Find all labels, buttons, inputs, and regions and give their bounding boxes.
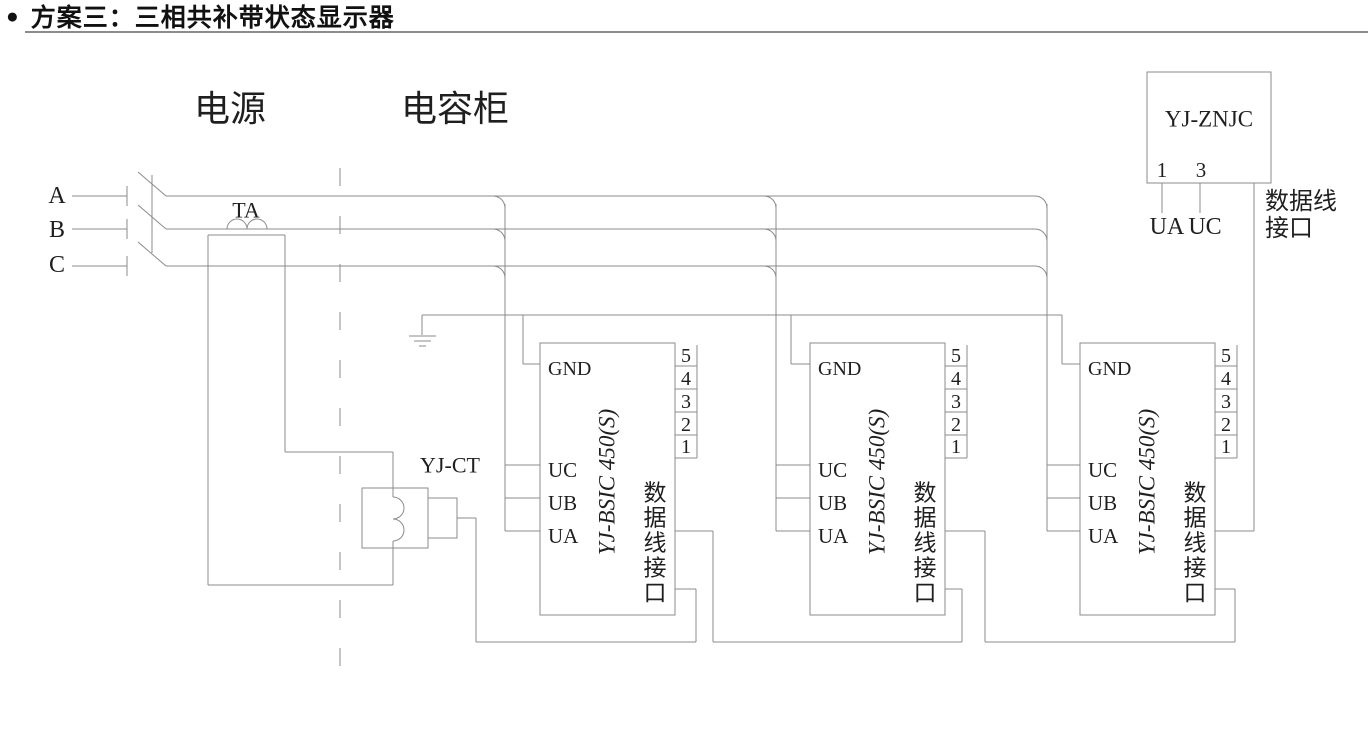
pin-number: 3 xyxy=(681,391,691,413)
ct-sensor: YJ-CT xyxy=(362,453,481,643)
tap-elbow xyxy=(764,229,776,241)
interface-label-char: 据 xyxy=(644,506,667,531)
display-unit: YJ-ZNJC 1 3 UA UC 数据线 接口 xyxy=(1147,72,1337,242)
pin-number: 2 xyxy=(681,414,691,436)
phase-a: A xyxy=(48,172,1035,209)
display-uc-label: UC xyxy=(1188,214,1221,240)
display-unit-name: YJ-ZNJC xyxy=(1165,107,1253,132)
pin-number: 4 xyxy=(681,368,691,390)
interface-label-char: 据 xyxy=(914,506,937,531)
phase-b: B xyxy=(49,205,1035,243)
interface-label-char: 接 xyxy=(1184,556,1207,581)
display-ua-label: UA xyxy=(1150,214,1185,240)
tap-elbow xyxy=(493,229,505,241)
pin-number: 2 xyxy=(1221,414,1231,436)
pin-number: 4 xyxy=(1221,368,1231,390)
tap-elbow xyxy=(764,196,776,208)
wiring-diagram: 电源 电容柜 A B C xyxy=(0,0,1368,753)
gnd-pin-label: GND xyxy=(1088,358,1131,380)
ua-pin-label: UA xyxy=(818,524,849,548)
scheme-diagram-page: ● 方案三：三相共补带状态显示器 电源 电容柜 A B C xyxy=(0,0,1368,753)
tap-elbow xyxy=(1035,229,1047,241)
pin-number: 5 xyxy=(1221,345,1231,367)
tap-elbow xyxy=(1035,196,1047,208)
pin-number: 1 xyxy=(681,436,691,458)
ub-pin-label: UB xyxy=(548,491,577,515)
pin-number: 5 xyxy=(681,345,691,367)
interface-label-char: 数 xyxy=(644,481,667,506)
pin-number: 2 xyxy=(951,414,961,436)
module-name: YJ-BSIC 450(S) xyxy=(1135,409,1160,555)
module-name: YJ-BSIC 450(S) xyxy=(595,409,620,555)
interface-label-char: 数 xyxy=(1184,481,1207,506)
interface-label-char: 口 xyxy=(644,581,667,606)
interface-label-char: 据 xyxy=(1184,506,1207,531)
phase-c-label: C xyxy=(49,252,65,278)
ua-pin-label: UA xyxy=(548,524,579,548)
interface-label-char: 线 xyxy=(1184,531,1207,556)
uc-pin-label: UC xyxy=(1088,458,1117,482)
pin-number: 3 xyxy=(1221,391,1231,413)
ct-loop-arcs xyxy=(393,497,404,541)
page-header: ● 方案三：三相共补带状态显示器 xyxy=(6,0,395,32)
bullet-icon: ● xyxy=(6,6,19,27)
ct-output-box xyxy=(428,498,457,538)
tap-elbow xyxy=(1035,266,1047,278)
phase-a-label: A xyxy=(48,183,66,209)
interface-label-char: 口 xyxy=(1184,581,1207,606)
module-2: 5 4 3 2 1 GND UC UB UA YJ-BSIC 450(S) 数 … xyxy=(764,196,985,642)
uc-pin-label: UC xyxy=(818,458,847,482)
module-name: YJ-BSIC 450(S) xyxy=(865,409,890,555)
phase-b-label: B xyxy=(49,217,65,243)
tap-elbow xyxy=(493,196,505,208)
module-3: 5 4 3 2 1 GND UC UB UA YJ-BSIC 450(S) 数 … xyxy=(1035,183,1254,642)
section-labels: 电源 电容柜 xyxy=(194,89,509,668)
page-title: 方案三：三相共补带状态显示器 xyxy=(31,0,395,34)
ta-transformer: TA xyxy=(208,198,404,586)
interface-label-char: 口 xyxy=(914,581,937,606)
interface-label-char: 线 xyxy=(914,531,937,556)
interface-label-char: 线 xyxy=(644,531,667,556)
pin-number: 4 xyxy=(951,368,961,390)
phase-c: C xyxy=(49,242,1035,278)
ua-pin-label: UA xyxy=(1088,524,1119,548)
display-pin-1: 1 xyxy=(1157,158,1168,182)
tap-elbow xyxy=(493,266,505,278)
uc-pin-label: UC xyxy=(548,458,577,482)
module-1: 5 4 3 2 1 GND UC UB UA YJ-BSIC 450(S) 数 … xyxy=(493,196,713,642)
ub-pin-label: UB xyxy=(818,491,847,515)
power-section-label: 电源 xyxy=(194,89,266,129)
gnd-pin-label: GND xyxy=(818,358,861,380)
display-interface-label-line1: 数据线 xyxy=(1265,188,1337,215)
pin-number: 1 xyxy=(951,436,961,458)
tap-elbow xyxy=(764,266,776,278)
ub-pin-label: UB xyxy=(1088,491,1117,515)
display-interface-label-line2: 接口 xyxy=(1265,215,1313,242)
gnd-pin-label: GND xyxy=(548,358,591,380)
cabinet-section-label: 电容柜 xyxy=(401,89,509,129)
pin-number: 3 xyxy=(951,391,961,413)
interface-label-char: 接 xyxy=(914,556,937,581)
ground-bus xyxy=(409,315,1062,346)
interface-label-char: 接 xyxy=(644,556,667,581)
interface-label-char: 数 xyxy=(914,481,937,506)
display-pin-3: 3 xyxy=(1196,158,1207,182)
pin-number: 1 xyxy=(1221,436,1231,458)
ct-label: YJ-CT xyxy=(420,453,480,478)
pin-number: 5 xyxy=(951,345,961,367)
